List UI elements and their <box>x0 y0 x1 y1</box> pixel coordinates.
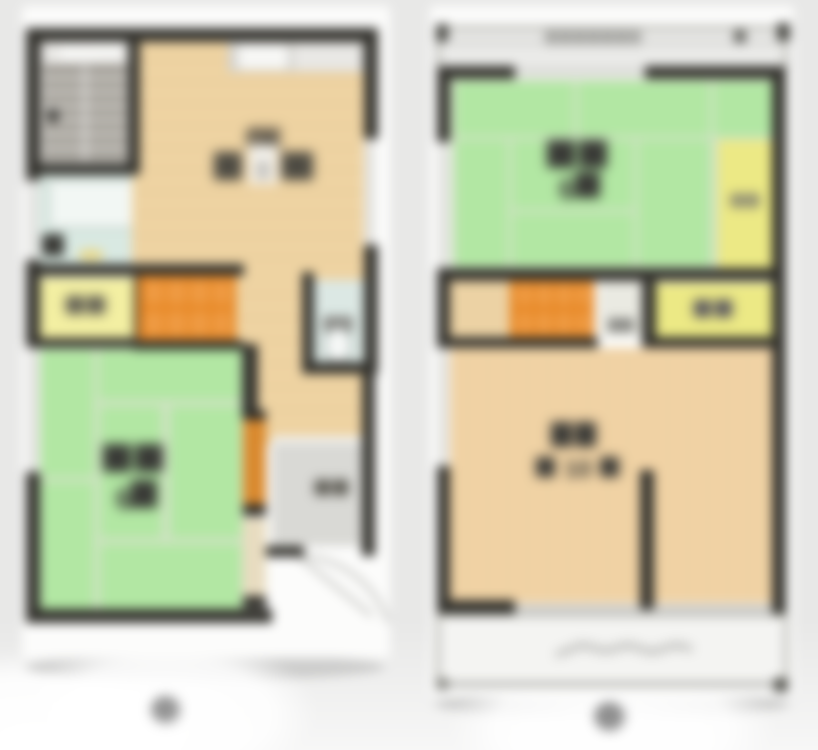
svg-text:8: 8 <box>256 155 270 185</box>
svg-text:6: 6 <box>559 174 575 206</box>
svg-text:10: 10 <box>565 456 592 483</box>
svg-text:6: 6 <box>116 483 133 516</box>
